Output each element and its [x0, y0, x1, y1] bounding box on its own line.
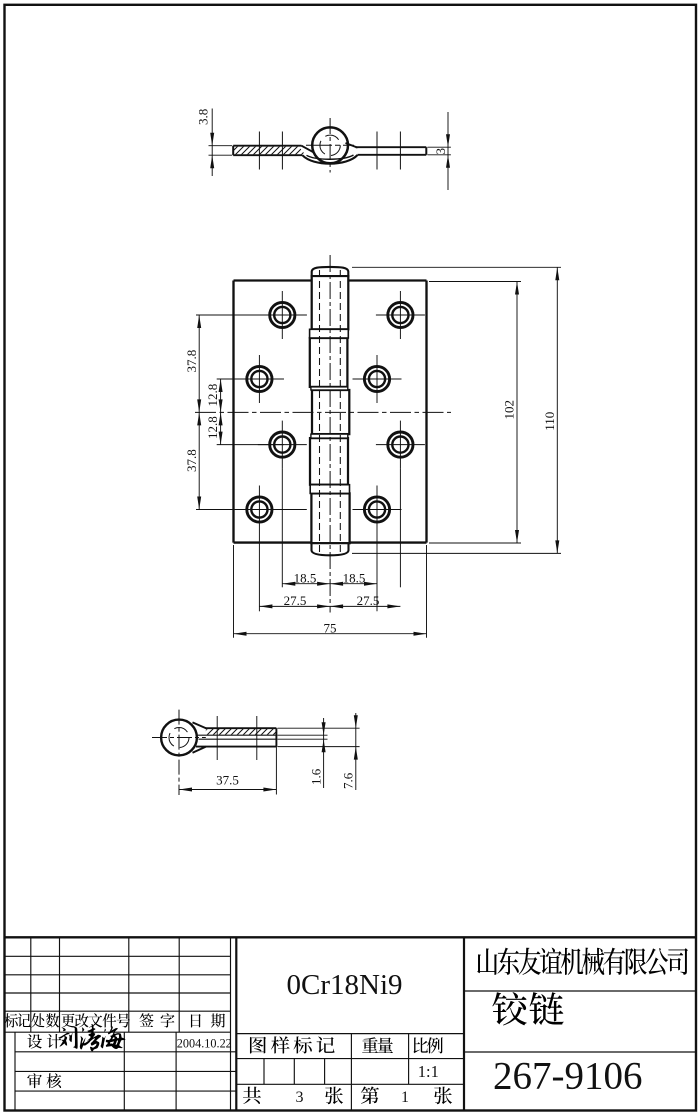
svg-text:2004.10.22: 2004.10.22 — [177, 1036, 232, 1051]
svg-text:27.5: 27.5 — [357, 593, 380, 608]
svg-text:37.8: 37.8 — [184, 350, 199, 373]
svg-text:3.8: 3.8 — [196, 109, 211, 125]
svg-text:102: 102 — [502, 400, 517, 420]
svg-text:7.6: 7.6 — [341, 772, 356, 789]
svg-text:37.8: 37.8 — [184, 449, 199, 472]
svg-text:3: 3 — [296, 1089, 304, 1106]
svg-text:18.5: 18.5 — [294, 570, 317, 585]
svg-text:27.5: 27.5 — [284, 593, 307, 608]
svg-text:3: 3 — [433, 148, 448, 155]
svg-text:110: 110 — [542, 412, 557, 431]
svg-text:12.8: 12.8 — [205, 384, 220, 407]
svg-text:12.8: 12.8 — [205, 416, 220, 439]
svg-text:1.6: 1.6 — [308, 768, 323, 785]
svg-text:267-9106: 267-9106 — [493, 1055, 643, 1098]
svg-text:1:1: 1:1 — [418, 1062, 439, 1081]
svg-text:0Cr18Ni9: 0Cr18Ni9 — [287, 969, 403, 1001]
svg-text:37.5: 37.5 — [216, 773, 239, 788]
svg-text:75: 75 — [324, 620, 337, 635]
svg-text:18.5: 18.5 — [343, 570, 366, 585]
svg-text:1: 1 — [401, 1089, 409, 1106]
